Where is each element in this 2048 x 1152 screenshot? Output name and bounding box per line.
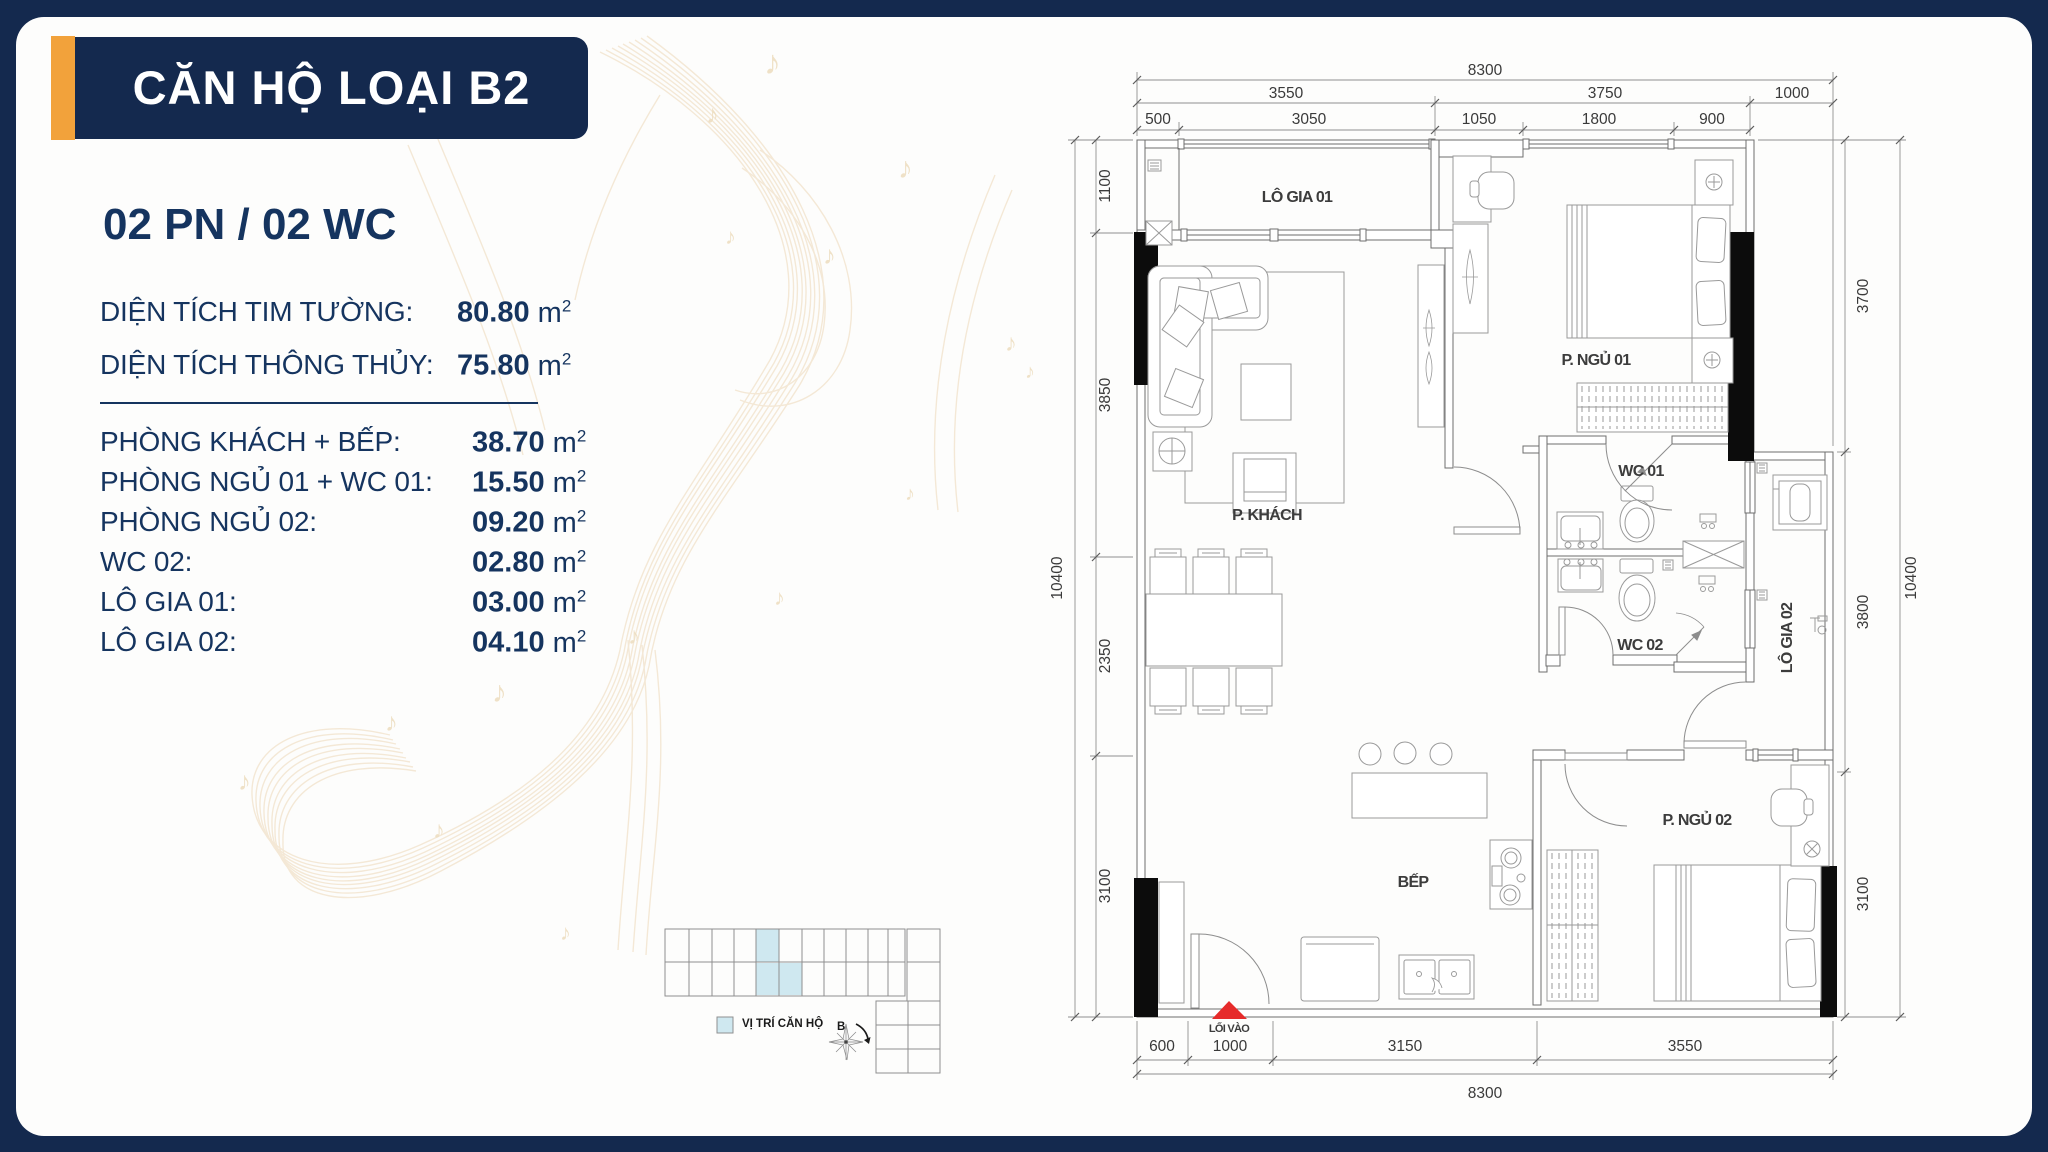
- svg-text:3100: 3100: [1855, 876, 1872, 911]
- svg-text:P. NGỦ 01: P. NGỦ 01: [1562, 350, 1632, 369]
- svg-text:3750: 3750: [1588, 85, 1623, 102]
- svg-text:BẾP: BẾP: [1398, 872, 1430, 891]
- svg-text:1050: 1050: [1462, 111, 1497, 128]
- svg-text:3550: 3550: [1668, 1038, 1703, 1055]
- svg-text:1100: 1100: [1097, 169, 1114, 203]
- svg-text:VỊ TRÍ CĂN HỘ: VỊ TRÍ CĂN HỘ: [742, 1017, 823, 1030]
- svg-text:3050: 3050: [1292, 111, 1327, 128]
- svg-text:2350: 2350: [1097, 638, 1114, 673]
- svg-text:3100: 3100: [1097, 868, 1114, 903]
- svg-text:WC 02: WC 02: [1617, 637, 1663, 654]
- svg-text:P. KHÁCH: P. KHÁCH: [1232, 505, 1302, 524]
- svg-text:3850: 3850: [1097, 377, 1114, 412]
- svg-text:1000: 1000: [1213, 1038, 1248, 1055]
- svg-text:8300: 8300: [1468, 1085, 1503, 1102]
- svg-text:8300: 8300: [1468, 62, 1503, 79]
- svg-text:P. NGỦ 02: P. NGỦ 02: [1663, 810, 1733, 829]
- svg-text:1000: 1000: [1775, 85, 1810, 102]
- svg-text:500: 500: [1145, 111, 1171, 128]
- svg-text:3150: 3150: [1388, 1038, 1423, 1055]
- svg-text:3700: 3700: [1855, 278, 1872, 313]
- svg-text:10400: 10400: [1903, 556, 1920, 599]
- svg-text:LÔ GIA 02: LÔ GIA 02: [1777, 602, 1796, 673]
- svg-text:600: 600: [1149, 1038, 1175, 1055]
- svg-text:WC 01: WC 01: [1618, 463, 1664, 480]
- svg-text:B: B: [837, 1021, 845, 1033]
- svg-text:3800: 3800: [1855, 594, 1872, 629]
- svg-text:1800: 1800: [1582, 111, 1617, 128]
- svg-text:10400: 10400: [1049, 556, 1066, 599]
- svg-text:LÔ GIA 01: LÔ GIA 01: [1262, 187, 1333, 206]
- svg-text:3550: 3550: [1269, 85, 1304, 102]
- svg-text:900: 900: [1699, 111, 1725, 128]
- svg-text:LỐI VÀO: LỐI VÀO: [1209, 1021, 1250, 1035]
